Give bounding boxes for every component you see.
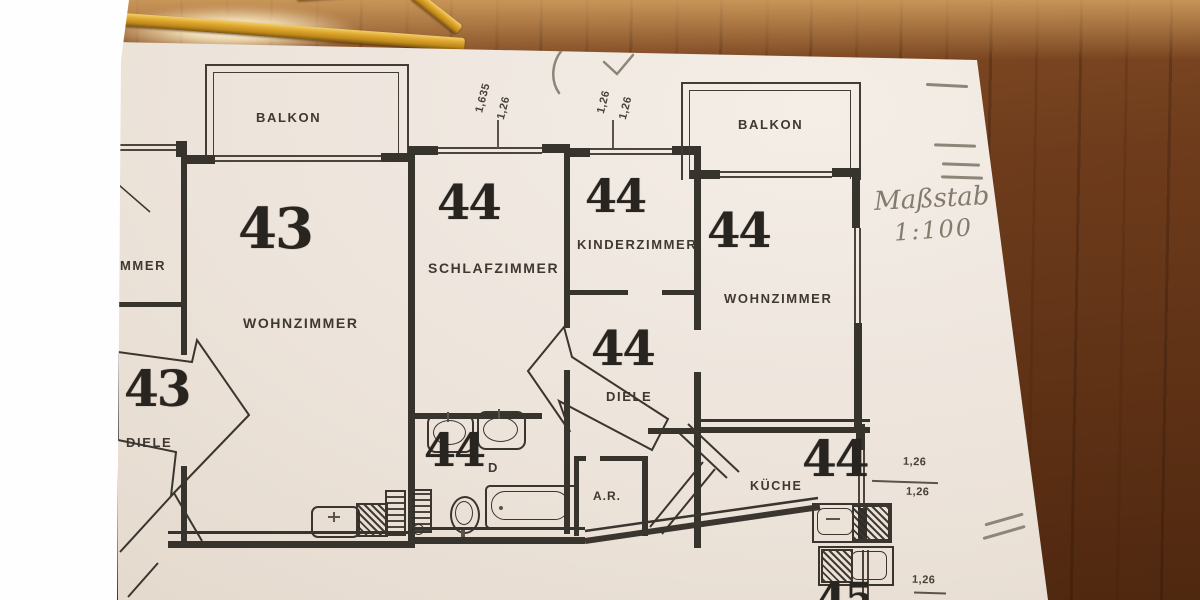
pencil-scribble xyxy=(553,50,562,93)
plan-linework-overlay xyxy=(0,0,1200,600)
entry-arrow-44 xyxy=(528,327,668,450)
pencil-checkmark xyxy=(604,55,633,74)
white-sheet-edge xyxy=(0,0,130,600)
diagonal-wall-thick xyxy=(585,507,820,541)
entry-arrow-lower-partial xyxy=(120,493,202,552)
stair-lines xyxy=(676,424,739,478)
entry-arrow-lower-line xyxy=(128,563,158,597)
photo-of-floorplan: { "colors":{ "wood":"#6e3c1c","wood_high… xyxy=(0,0,1200,600)
entry-arrow-43 xyxy=(118,340,249,496)
floorplan-paper: MMER 43 DIELE 1,26 BALKON 43 WOHNZIMMER … xyxy=(0,0,1200,600)
